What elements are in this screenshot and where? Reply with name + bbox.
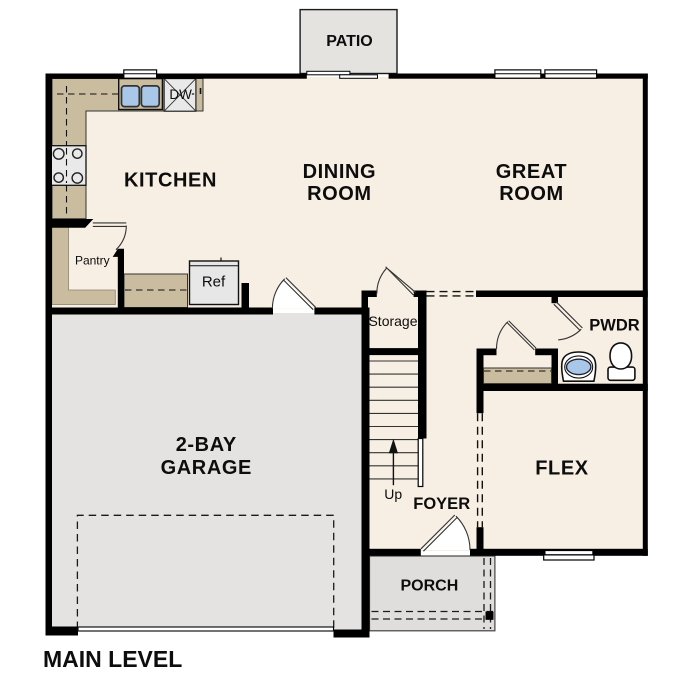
svg-text:MAIN LEVEL: MAIN LEVEL xyxy=(43,646,182,672)
svg-text:FLEX: FLEX xyxy=(535,458,589,480)
svg-text:DINING: DINING xyxy=(303,161,377,183)
svg-text:Storage: Storage xyxy=(368,313,417,329)
svg-text:2-BAY: 2-BAY xyxy=(176,434,237,456)
svg-text:PORCH: PORCH xyxy=(401,578,459,595)
svg-text:Ref: Ref xyxy=(202,274,226,291)
svg-text:PWDR: PWDR xyxy=(589,317,639,335)
svg-text:DW: DW xyxy=(169,87,192,102)
svg-text:Up: Up xyxy=(384,486,402,502)
svg-text:ROOM: ROOM xyxy=(307,183,372,205)
svg-text:Pantry: Pantry xyxy=(75,254,110,268)
svg-text:FOYER: FOYER xyxy=(413,495,470,513)
svg-text:PATIO: PATIO xyxy=(326,33,373,50)
svg-text:ROOM: ROOM xyxy=(499,183,564,205)
svg-text:GARAGE: GARAGE xyxy=(161,457,252,479)
svg-text:KITCHEN: KITCHEN xyxy=(124,170,217,192)
svg-text:GREAT: GREAT xyxy=(496,161,568,183)
